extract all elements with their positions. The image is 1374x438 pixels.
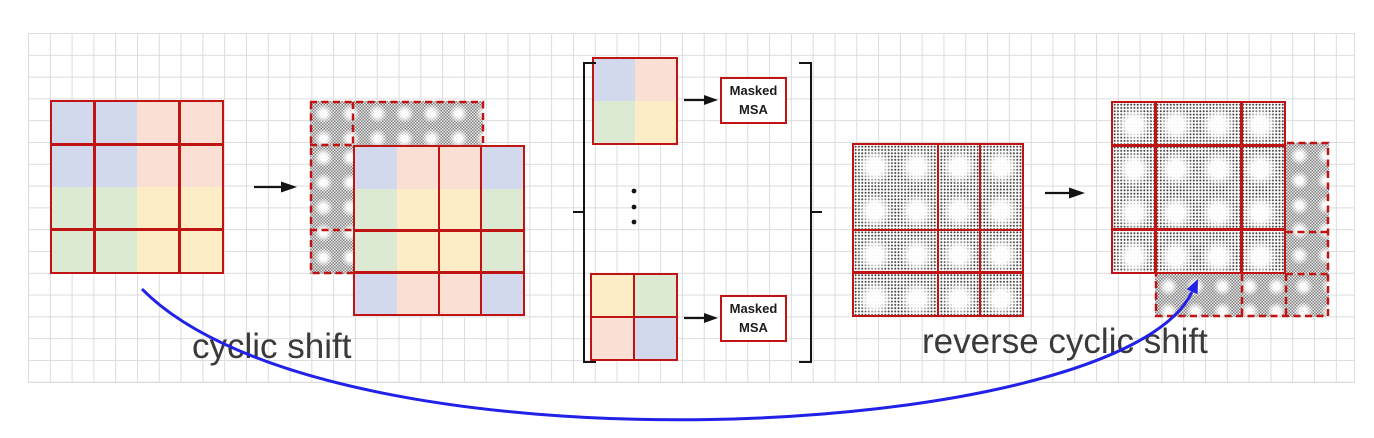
msa-label-line1: Masked — [730, 300, 778, 319]
feature-map-grid — [50, 100, 224, 274]
map-cell-blue — [355, 272, 397, 314]
map-cell-peach — [397, 272, 439, 314]
map-cell-green — [481, 231, 523, 273]
map-cell-green — [634, 275, 676, 317]
map-cell-green — [355, 231, 397, 273]
window-partition-line — [592, 316, 676, 319]
map-cell-peach — [592, 317, 634, 359]
map-cell-blue — [481, 272, 523, 314]
map-cell-yellow — [439, 189, 481, 231]
masked-msa-box-bottom: Masked MSA — [720, 295, 787, 342]
restored-map-grid — [1111, 101, 1286, 274]
map-cell-yellow — [397, 189, 439, 231]
masked-msa-box-top: Masked MSA — [720, 77, 787, 124]
map-cell-peach — [397, 147, 439, 189]
window-partition-line — [1240, 103, 1243, 272]
map-cell-blue — [52, 102, 95, 145]
map-cell-blue — [355, 147, 397, 189]
map-cell-blue — [634, 317, 676, 359]
map-cell-blue — [52, 145, 95, 188]
cyclic-shifted-grid — [353, 145, 525, 316]
map-cell-yellow — [137, 187, 180, 230]
map-cell-peach — [137, 145, 180, 188]
window-partition-line — [52, 228, 222, 231]
map-cell-blue — [95, 102, 138, 145]
window-bottom-grid — [590, 273, 678, 361]
window-top-grid — [592, 57, 678, 145]
map-cell-green — [481, 189, 523, 231]
map-cell-peach — [635, 59, 676, 101]
ghost-bottom-strip — [1155, 274, 1329, 317]
map-cell-blue — [594, 59, 635, 101]
map-cell-green — [95, 230, 138, 273]
reverse-cyclic-shift-label: reverse cyclic shift — [922, 322, 1208, 362]
window-partition-line — [355, 229, 523, 232]
window-partition-line — [93, 102, 96, 272]
map-cell-blue — [95, 145, 138, 188]
map-cell-peach — [439, 272, 481, 314]
window-partition-line — [1113, 228, 1284, 231]
map-cell-green — [52, 230, 95, 273]
feature-map-cells — [52, 102, 222, 272]
window-partition-line — [854, 229, 1022, 232]
map-cell-yellow — [397, 231, 439, 273]
window-partition-line — [52, 143, 222, 146]
window-partition-line — [355, 271, 523, 274]
map-cell-peach — [439, 147, 481, 189]
msa-label-line2: MSA — [739, 319, 768, 338]
map-cell-green — [95, 187, 138, 230]
map-cell-green — [355, 189, 397, 231]
window-partition-line — [178, 102, 181, 272]
window-partition-line — [1154, 103, 1157, 272]
window-partition-line — [1113, 144, 1284, 147]
map-cell-yellow — [592, 275, 634, 317]
map-cell-peach — [180, 145, 223, 188]
map-cell-green — [594, 101, 635, 143]
map-cell-blue — [481, 147, 523, 189]
map-cell-yellow — [439, 231, 481, 273]
attention-output-grid — [852, 143, 1024, 317]
map-cell-yellow — [137, 230, 180, 273]
cyclic-shift-label: cyclic shift — [192, 327, 351, 367]
window-top-cells — [594, 59, 676, 143]
map-cell-yellow — [180, 187, 223, 230]
map-cell-peach — [180, 102, 223, 145]
map-cell-green — [52, 187, 95, 230]
ghost-left-strip — [310, 145, 353, 274]
map-cell-yellow — [180, 230, 223, 273]
map-cell-yellow — [635, 101, 676, 143]
swin-cyclic-shift-diagram: Masked MSA Masked MSA cyclic shift rever… — [0, 0, 1374, 438]
window-partition-line — [854, 271, 1022, 274]
msa-label-line2: MSA — [739, 101, 768, 120]
map-cell-peach — [137, 102, 180, 145]
msa-label-line1: Masked — [730, 82, 778, 101]
ghost-top-strip — [310, 101, 483, 145]
